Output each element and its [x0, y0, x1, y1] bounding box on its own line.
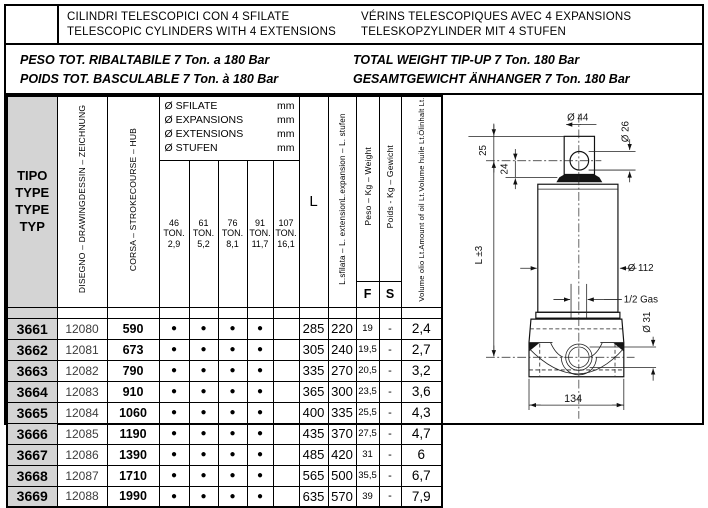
- cell-S: -: [379, 423, 401, 444]
- cell-ext-91: ●: [247, 444, 273, 465]
- cell-S: -: [379, 339, 401, 360]
- cell-l-sfilata: 300: [328, 381, 356, 402]
- cell-ext-46: ●: [159, 360, 189, 381]
- dim-base-width-label: 134: [564, 393, 582, 405]
- cell-ext-76: ●: [218, 381, 247, 402]
- cell-ext-46: ●: [159, 423, 189, 444]
- spec-table: TIPO TYPE TYPE TYP DISEGNO – DRAWINGDESS…: [6, 95, 443, 508]
- dim-oil-port-label: 1/2 Gas: [624, 294, 658, 305]
- cell-volume: 4,3: [401, 402, 442, 423]
- cell-corsa: 1060: [107, 402, 159, 423]
- cell-ext-76: ●: [218, 339, 247, 360]
- cell-tipo: 3665: [7, 402, 57, 423]
- title-it: CILINDRI TELESCOPICI CON 4 SFILATE: [67, 10, 355, 24]
- cell-disegno: 12081: [57, 339, 107, 360]
- header-ton-76: 76TON.8,1: [218, 160, 247, 307]
- dim-length-label: L ±3: [474, 246, 485, 265]
- eye-block: [564, 136, 594, 174]
- cell-L: 335: [299, 360, 328, 381]
- cell-l-sfilata: 270: [328, 360, 356, 381]
- cell-L: 435: [299, 423, 328, 444]
- table-row: 366412083910●●●●36530023,5-3,6: [7, 381, 442, 402]
- header-l-sfilata: L.sfilata – L. extensionL.expansion – L.…: [328, 96, 356, 307]
- cell-ext-61: ●: [189, 318, 218, 339]
- spec-table-wrap: TIPO TYPE TYPE TYP DISEGNO – DRAWINGDESS…: [6, 95, 443, 423]
- cell-ext-46: ●: [159, 339, 189, 360]
- cell-l-sfilata: 570: [328, 486, 356, 507]
- cell-disegno: 12083: [57, 381, 107, 402]
- cell-S: -: [379, 402, 401, 423]
- cell-tipo: 3669: [7, 486, 57, 507]
- weight-en: TOTAL WEIGHT TIP-UP 7 Ton. 180 Bar: [353, 53, 702, 67]
- cell-disegno: 12085: [57, 423, 107, 444]
- cell-volume: 7,9: [401, 486, 442, 507]
- cell-ext-91: ●: [247, 360, 273, 381]
- cell-L: 305: [299, 339, 328, 360]
- weight-it: PESO TOT. RIBALTABILE 7 Ton. a 180 Bar: [20, 53, 353, 67]
- title-right: VÉRINS TELESCOPIQUES AVEC 4 EXPANSIONS T…: [355, 6, 702, 43]
- cell-ext-91: ●: [247, 402, 273, 423]
- cell-L: 365: [299, 381, 328, 402]
- cell-l-sfilata: 335: [328, 402, 356, 423]
- cell-ext-107: [273, 360, 299, 381]
- header-volume: Volume olio Lt.Amount of oil Lt.Volume h…: [401, 96, 442, 307]
- cell-ext-107: [273, 339, 299, 360]
- cell-disegno: 12084: [57, 402, 107, 423]
- cell-F: 27,5: [356, 423, 379, 444]
- cell-ext-46: ●: [159, 318, 189, 339]
- cell-S: -: [379, 318, 401, 339]
- catalog-page: CILINDRI TELESCOPICI CON 4 SFILATE TELES…: [0, 0, 708, 429]
- cell-corsa: 1990: [107, 486, 159, 507]
- cell-volume: 4,7: [401, 423, 442, 444]
- cell-ext-61: ●: [189, 339, 218, 360]
- cell-tipo: 3664: [7, 381, 57, 402]
- cell-volume: 3,2: [401, 360, 442, 381]
- cell-L: 565: [299, 465, 328, 486]
- cell-F: 23,5: [356, 381, 379, 402]
- cell-corsa: 1710: [107, 465, 159, 486]
- cell-tipo: 3663: [7, 360, 57, 381]
- cell-l-sfilata: 500: [328, 465, 356, 486]
- cell-corsa: 1390: [107, 444, 159, 465]
- header-tipo: TIPO TYPE TYPE TYP: [7, 96, 57, 307]
- table-row: 366112080590●●●●28522019-2,4: [7, 318, 442, 339]
- header-ton-61: 61TON.5,2: [189, 160, 218, 307]
- cell-l-sfilata: 370: [328, 423, 356, 444]
- cell-F: 31: [356, 444, 379, 465]
- cell-S: -: [379, 381, 401, 402]
- cell-ext-46: ●: [159, 402, 189, 423]
- cell-ext-91: ●: [247, 423, 273, 444]
- cell-ext-91: ●: [247, 339, 273, 360]
- cell-disegno: 12087: [57, 465, 107, 486]
- table-row: 366312082790●●●●33527020,5-3,2: [7, 360, 442, 381]
- cell-ext-61: ●: [189, 381, 218, 402]
- cell-corsa: 790: [107, 360, 159, 381]
- cell-corsa: 673: [107, 339, 159, 360]
- content-area: TIPO TYPE TYPE TYP DISEGNO – DRAWINGDESS…: [6, 95, 702, 423]
- cell-volume: 6: [401, 444, 442, 465]
- cell-ext-107: [273, 444, 299, 465]
- table-row: 3669120881990●●●●63557039-7,9: [7, 486, 442, 507]
- cell-tipo: 3666: [7, 423, 57, 444]
- cell-F: 19,5: [356, 339, 379, 360]
- cell-ext-91: ●: [247, 381, 273, 402]
- header-disegno: DISEGNO – DRAWINGDESSIN – ZEICHNUNG: [57, 96, 107, 307]
- cell-ext-61: ●: [189, 402, 218, 423]
- cell-l-sfilata: 420: [328, 444, 356, 465]
- dim-body-diameter-label: Ø 112: [628, 263, 654, 274]
- weight-band: PESO TOT. RIBALTABILE 7 Ton. a 180 Bar P…: [6, 45, 702, 95]
- header-peso: Peso – Kg – Weight: [356, 96, 379, 281]
- weight-right: TOTAL WEIGHT TIP-UP 7 Ton. 180 Bar GESAM…: [353, 45, 702, 93]
- cell-L: 485: [299, 444, 328, 465]
- cell-ext-46: ●: [159, 465, 189, 486]
- cell-ext-107: [273, 381, 299, 402]
- header-ton-107: 107TON.16,1: [273, 160, 299, 307]
- cell-l-sfilata: 240: [328, 339, 356, 360]
- title-de: TELESKOPZYLINDER MIT 4 STUFEN: [361, 25, 702, 39]
- cell-ext-107: [273, 465, 299, 486]
- cell-ext-46: ●: [159, 381, 189, 402]
- cell-disegno: 12086: [57, 444, 107, 465]
- cell-ext-107: [273, 486, 299, 507]
- header-S: S: [379, 281, 401, 307]
- cell-corsa: 590: [107, 318, 159, 339]
- cell-ext-76: ●: [218, 402, 247, 423]
- title-band: CILINDRI TELESCOPICI CON 4 SFILATE TELES…: [6, 6, 702, 45]
- cylinder-body: [538, 184, 618, 312]
- table-row: 3666120851190●●●●43537027,5-4,7: [7, 423, 442, 444]
- title-corner-cell: [6, 6, 59, 43]
- cell-tipo: 3667: [7, 444, 57, 465]
- cell-l-sfilata: 220: [328, 318, 356, 339]
- table-row: 3667120861390●●●●48542031-6: [7, 444, 442, 465]
- cell-S: -: [379, 444, 401, 465]
- cell-ext-91: ●: [247, 465, 273, 486]
- cell-ext-107: [273, 318, 299, 339]
- dim-24-label: 24: [500, 163, 511, 174]
- header-F: F: [356, 281, 379, 307]
- header-diameters: Ø SFILATEmm Ø EXPANSIONSmm Ø EXTENSIONSm…: [159, 96, 299, 160]
- page-frame: CILINDRI TELESCOPICI CON 4 SFILATE TELES…: [4, 4, 704, 425]
- cell-ext-61: ●: [189, 444, 218, 465]
- cell-volume: 2,7: [401, 339, 442, 360]
- cell-corsa: 910: [107, 381, 159, 402]
- cell-ext-91: ●: [247, 318, 273, 339]
- cell-F: 25,5: [356, 402, 379, 423]
- collar: [556, 174, 602, 182]
- weight-de: GESAMTGEWICHT ÄNHANGER 7 Ton. 180 Bar: [353, 72, 702, 86]
- dim-base-hole-label: Ø 31: [642, 312, 653, 333]
- spacer-row: [7, 307, 442, 318]
- cell-disegno: 12088: [57, 486, 107, 507]
- cell-ext-76: ●: [218, 465, 247, 486]
- spec-table-body: 366112080590●●●●28522019-2,4366212081673…: [7, 307, 442, 507]
- cell-corsa: 1190: [107, 423, 159, 444]
- cell-ext-46: ●: [159, 486, 189, 507]
- table-row: 3668120871710●●●●56550035,5-6,7: [7, 465, 442, 486]
- header-poids: Poids - Kg – Gewicht: [379, 96, 401, 281]
- cell-ext-76: ●: [218, 444, 247, 465]
- body-flange: [536, 312, 620, 318]
- weight-fr: POIDS TOT. BASCULABLE 7 Ton. à 180 Bar: [20, 72, 353, 86]
- base-mount: [529, 319, 624, 377]
- table-row: 3665120841060●●●●40033525,5-4,3: [7, 402, 442, 423]
- cell-F: 19: [356, 318, 379, 339]
- header-ton-91: 91TON.11,7: [247, 160, 273, 307]
- technical-drawing: Ø 44 Ø 26 25 24 L ±3 Ø 112 1/2 Gas Ø 31 …: [443, 95, 702, 423]
- weight-left: PESO TOT. RIBALTABILE 7 Ton. a 180 Bar P…: [6, 45, 353, 93]
- title-en: TELESCOPIC CYLINDERS WITH 4 EXTENSIONS: [67, 25, 355, 39]
- dim-eye-hole-label: Ø 26: [621, 121, 632, 142]
- cell-S: -: [379, 486, 401, 507]
- cell-F: 20,5: [356, 360, 379, 381]
- cell-ext-107: [273, 402, 299, 423]
- dim-eye-width-label: Ø 44: [567, 113, 589, 124]
- cell-tipo: 3662: [7, 339, 57, 360]
- header-ton-46: 46TON.2,9: [159, 160, 189, 307]
- cell-ext-61: ●: [189, 486, 218, 507]
- cell-L: 400: [299, 402, 328, 423]
- header-L: L: [299, 96, 328, 307]
- cell-volume: 3,6: [401, 381, 442, 402]
- cell-disegno: 12082: [57, 360, 107, 381]
- cell-ext-76: ●: [218, 360, 247, 381]
- dim-25-label: 25: [478, 144, 489, 155]
- cell-disegno: 12080: [57, 318, 107, 339]
- header-corsa: CORSA – STROKECOURSE – HUB: [107, 96, 159, 307]
- cell-ext-76: ●: [218, 423, 247, 444]
- cell-volume: 2,4: [401, 318, 442, 339]
- cell-ext-91: ●: [247, 486, 273, 507]
- cell-ext-46: ●: [159, 444, 189, 465]
- cell-ext-107: [273, 423, 299, 444]
- cell-ext-76: ●: [218, 486, 247, 507]
- cell-F: 39: [356, 486, 379, 507]
- cell-ext-61: ●: [189, 465, 218, 486]
- cell-L: 635: [299, 486, 328, 507]
- cell-S: -: [379, 465, 401, 486]
- cell-S: -: [379, 360, 401, 381]
- table-row: 366212081673●●●●30524019,5-2,7: [7, 339, 442, 360]
- cell-L: 285: [299, 318, 328, 339]
- cell-tipo: 3661: [7, 318, 57, 339]
- cell-ext-76: ●: [218, 318, 247, 339]
- cell-ext-61: ●: [189, 360, 218, 381]
- cell-volume: 6,7: [401, 465, 442, 486]
- cell-ext-61: ●: [189, 423, 218, 444]
- title-left: CILINDRI TELESCOPICI CON 4 SFILATE TELES…: [59, 6, 355, 43]
- cell-F: 35,5: [356, 465, 379, 486]
- cell-tipo: 3668: [7, 465, 57, 486]
- title-fr: VÉRINS TELESCOPIQUES AVEC 4 EXPANSIONS: [361, 10, 702, 24]
